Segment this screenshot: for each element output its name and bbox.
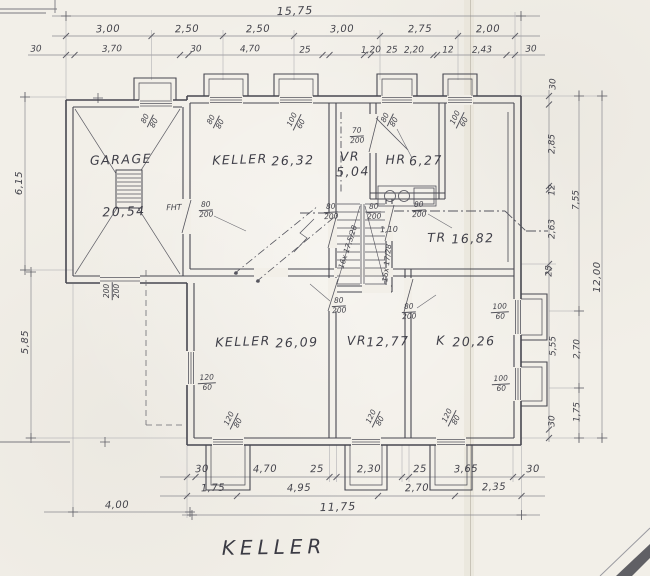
window-label-keller-lower-side: 120 60 (197, 373, 216, 392)
dim-bottom-row1-0: 30 (195, 465, 209, 475)
window-label-garage: 80 80 (139, 111, 162, 131)
room-vr-upper-name: VR (340, 150, 361, 163)
dim-top-row3-10: 30 (525, 45, 537, 54)
dim-right-inner-3: 2,63 (549, 219, 558, 239)
floor-plan-sheet: 15,75 3,00 2,50 2,50 3,00 2,75 2,00 30 3… (0, 0, 650, 576)
stair-label-left: 16x 17,5/28 (337, 224, 358, 269)
dim-top-row3-6: 25 (386, 46, 398, 55)
door-label-vr-lower: 80 200 (331, 296, 346, 315)
dim-top-row3-7: 2,20 (404, 46, 424, 56)
dim-top-row3-1: 3,70 (102, 45, 122, 55)
dim-bottom-total: 11,75 (320, 501, 357, 513)
window-label-k-right-upper-den: 60 (495, 313, 505, 322)
dim-top-row2-4: 2,75 (408, 25, 433, 36)
dim-top-row3-2: 30 (190, 45, 202, 54)
door-label-fht: 80 200 (198, 200, 213, 219)
dim-right-mid-0: 7,55 (573, 190, 582, 210)
room-keller-upper-name: KELLER (212, 153, 268, 167)
dim-bottom-left: 4,00 (105, 501, 130, 512)
room-vr-lower-area: 12,77 (366, 335, 410, 349)
stair-label-right: 16x 17/28 (381, 244, 392, 283)
door-label-k: 80 200 (401, 302, 416, 321)
dim-top-row2-3: 3,00 (330, 25, 355, 36)
dim-top-row2-0: 3,00 (96, 25, 121, 36)
dim-top-row3-8: 12 (442, 46, 454, 55)
window-label-k-right-upper: 100 60 (490, 302, 509, 321)
room-vr-upper-area: 5,04 (336, 165, 370, 179)
dim-top-total: 15,75 (277, 5, 314, 17)
window-label-k-right-lower-den: 60 (496, 385, 506, 394)
door-label-keller-vr-den: 200 (324, 213, 339, 222)
dim-top-row3-3: 4,70 (240, 45, 260, 55)
dim-right-inner-5: 5,55 (550, 336, 559, 356)
dim-bottom-row1-2: 25 (310, 465, 324, 475)
dim-right-inner-2: 12 (549, 184, 558, 195)
door-label-hr-den: 200 (350, 137, 365, 146)
window-label-garage-den: 80 (149, 117, 161, 129)
window-label-tr-den: 60 (459, 116, 471, 128)
room-keller-lower-area: 26,09 (275, 336, 319, 350)
dim-top-row3-5: 1,20 (361, 46, 381, 56)
dim-top-row3-0: 30 (30, 45, 42, 54)
door-label-tr: 80 200 (411, 200, 426, 219)
fht-door-prefix: FHT (166, 204, 182, 213)
door-label-tr-den: 200 (412, 211, 427, 220)
dim-right-mid-1: 2,70 (574, 339, 583, 359)
door-label-stair-den: 200 (367, 213, 382, 222)
dim-right-inner-4: 25 (546, 265, 555, 276)
door-label-stair: 80 200 (366, 202, 381, 221)
dim-right-mid-2: 1,75 (574, 402, 583, 422)
sheet-title: KELLER (222, 536, 327, 558)
window-label-keller-upper-right-den: 60 (296, 118, 308, 130)
dim-top-row2-5: 2,00 (476, 25, 501, 36)
stair-width-dim: 1,10 (380, 226, 398, 235)
door-label-keller-vr: 80 200 (323, 202, 338, 221)
dim-left-0: 6,15 (15, 171, 25, 195)
dim-left-1: 5,85 (21, 330, 31, 354)
window-label-k-bottom-den: 80 (451, 414, 463, 426)
window-label-k-right-lower: 100 60 (491, 374, 510, 393)
window-label-hr-den: 80 (389, 116, 401, 128)
dim-bottom-row1-4: 25 (413, 465, 427, 475)
window-label-keller-upper-left-den: 80 (215, 118, 227, 130)
door-label-k-den: 200 (402, 313, 417, 322)
window-label-keller-lower-den: 80 (233, 417, 245, 429)
door-label-fht-den: 200 (199, 211, 214, 220)
dim-top-row2-2: 2,50 (246, 25, 271, 36)
dim-bottom-row2-2: 2,70 (405, 484, 430, 495)
room-tr-area: 16,82 (451, 232, 495, 246)
dim-top-row2-1: 2,50 (175, 25, 200, 36)
door-label-hr: 70 200 (349, 126, 364, 145)
door-label-vr-lower-den: 200 (332, 307, 347, 316)
dim-top-row3-9: 2,43 (472, 46, 492, 56)
window-label-vr-lower: 120 80 (364, 407, 389, 432)
room-keller-lower-name: KELLER (215, 335, 271, 349)
room-garage-area: 20,54 (102, 205, 146, 219)
room-garage-name: GARAGE (90, 153, 152, 168)
dim-top-row3-4: 25 (299, 46, 311, 55)
dim-bottom-row1-3: 2,30 (357, 465, 382, 476)
labels-layer: 15,75 3,00 2,50 2,50 3,00 2,75 2,00 30 3… (0, 0, 650, 576)
garage-door-label: 200 200 (103, 282, 122, 300)
room-keller-upper-area: 26,32 (271, 154, 315, 168)
dim-bottom-row1-5: 3,65 (454, 465, 479, 476)
room-hr-area: 6,27 (409, 154, 443, 168)
room-hr-name: HR (385, 153, 407, 166)
window-label-vr-lower-den: 80 (375, 415, 387, 427)
dim-bottom-row1-1: 4,70 (253, 465, 278, 476)
window-label-hr: 80 80 (379, 110, 402, 130)
room-k-name: K (436, 335, 446, 348)
window-label-keller-lower-side-den: 60 (202, 384, 212, 393)
dim-right-inner-6: 30 (549, 415, 558, 426)
dim-bottom-row2-0: 1,75 (201, 484, 226, 495)
dim-right-inner-1: 2,85 (549, 134, 558, 154)
window-label-keller-lower: 120 80 (222, 409, 247, 434)
dim-right-total: 12,00 (593, 261, 603, 292)
room-tr-name: TR (427, 231, 447, 244)
window-label-k-bottom: 120 80 (440, 406, 465, 431)
dim-right-inner-0: 30 (550, 78, 559, 89)
window-label-keller-upper-left: 80 80 (205, 112, 228, 132)
dim-bottom-row2-3: 2,35 (482, 483, 507, 494)
room-k-area: 20,26 (452, 335, 496, 349)
window-label-keller-upper-right: 100 60 (285, 110, 310, 135)
dim-bottom-row1-6: 30 (526, 465, 540, 475)
window-label-tr: 100 60 (448, 108, 473, 133)
garage-door-label-den: 200 (113, 284, 121, 298)
dim-bottom-row2-1: 4,95 (287, 484, 312, 495)
room-vr-lower-name: VR (347, 334, 368, 347)
